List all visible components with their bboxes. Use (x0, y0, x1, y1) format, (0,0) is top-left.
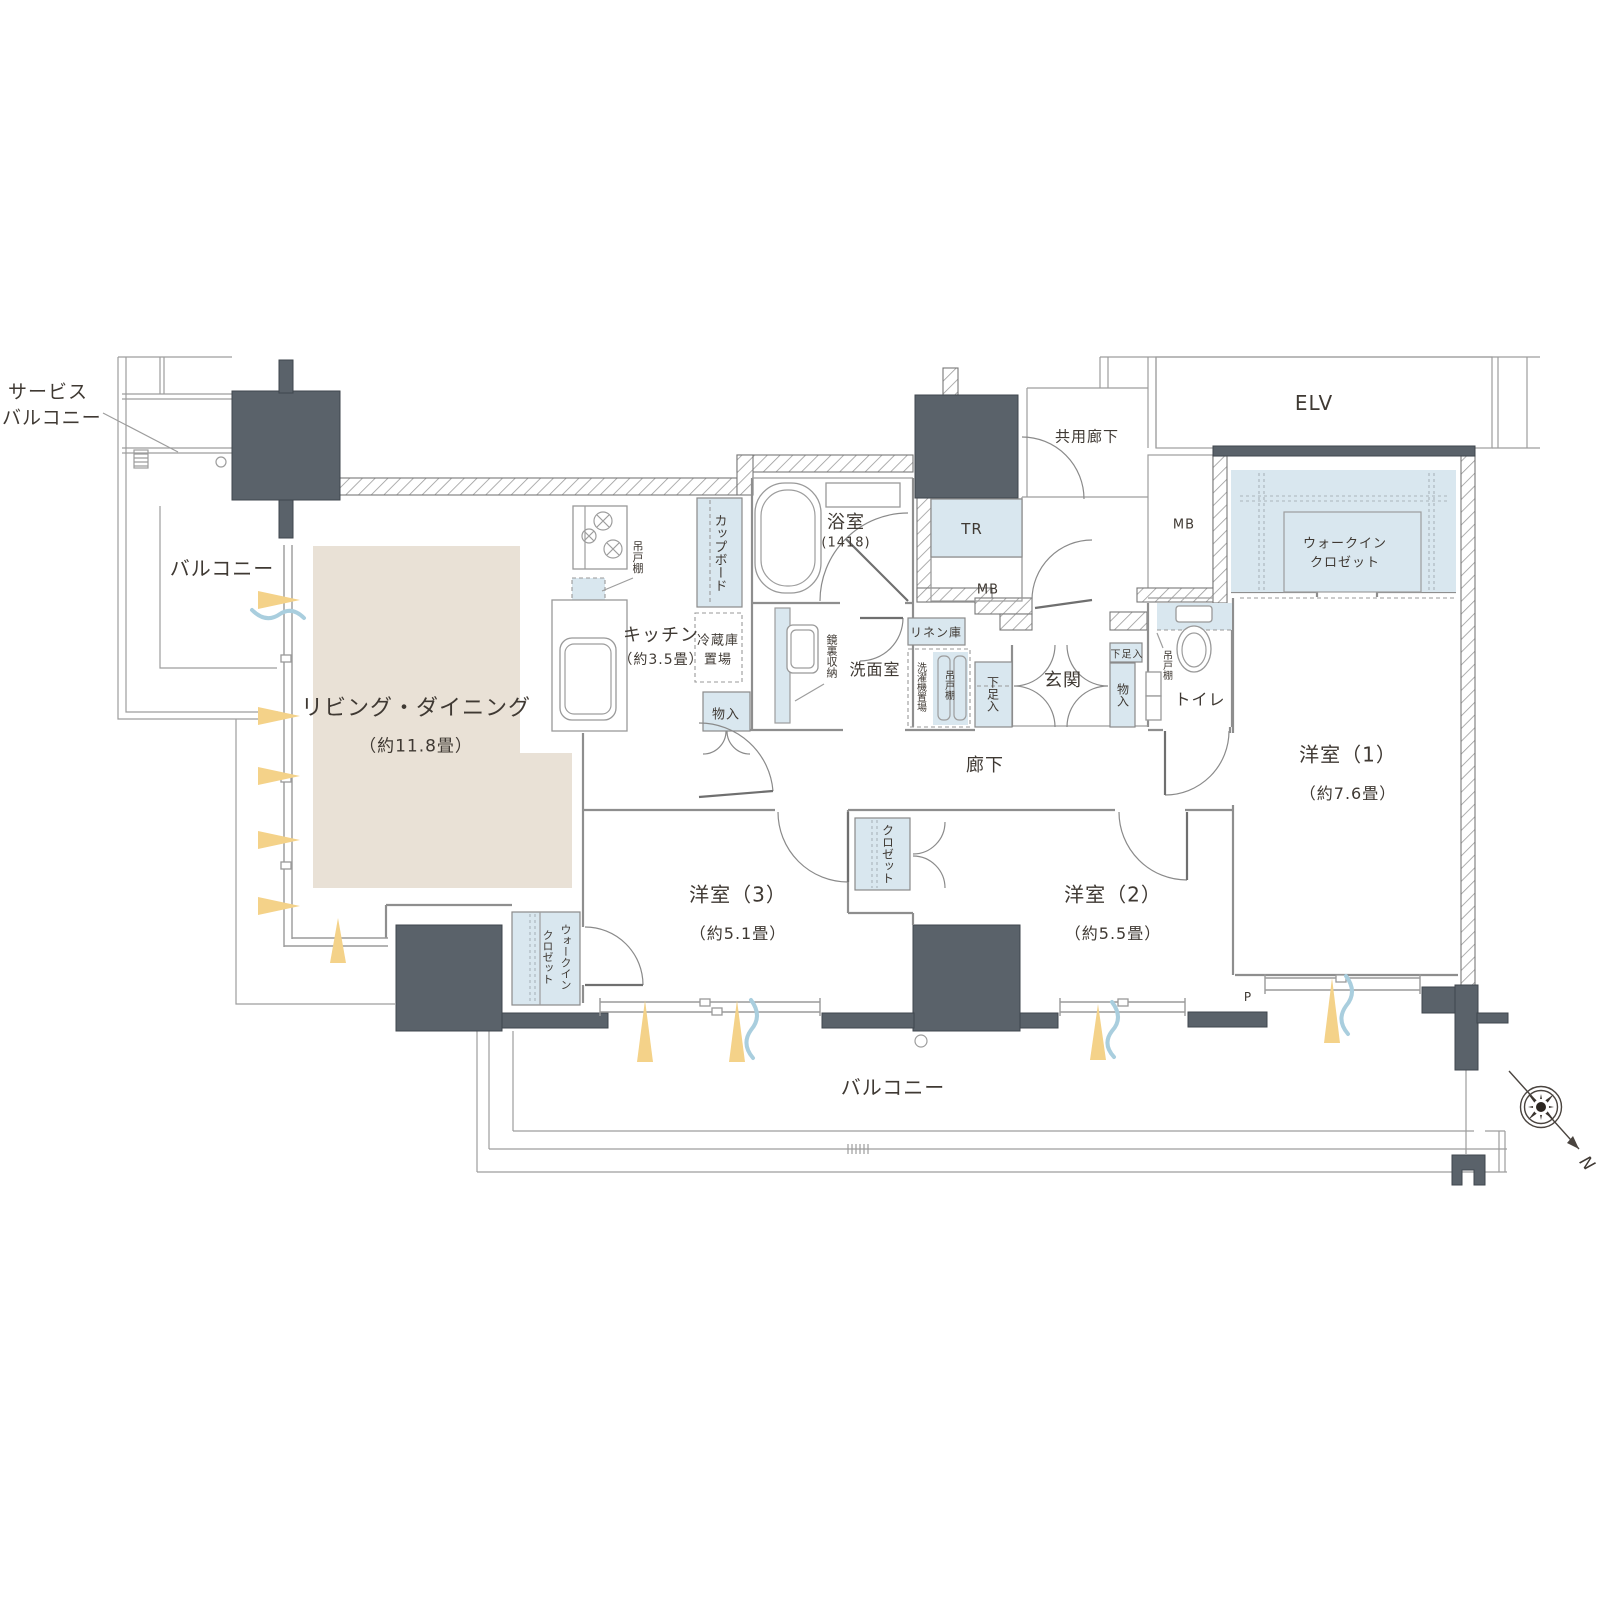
fridge-space-label-line1: 冷蔵庫 (697, 630, 739, 649)
closet-label: クロゼット (880, 824, 897, 884)
living-dining-size: （約11.8畳） (359, 732, 473, 757)
washroom-label: 洗面室 (849, 656, 900, 680)
floor-plan: サービス バルコニー バルコニー リビング・ダイニング （約11.8畳） キッチ… (0, 0, 1600, 1600)
bedroom1-label: 洋室（1） (1299, 739, 1397, 768)
compass (1509, 1071, 1579, 1149)
elevator-label: ELV (1295, 391, 1333, 415)
wic-bedroom3-label-line2: クロゼット (539, 930, 555, 985)
trunk-room-label: TR (961, 520, 983, 538)
mirror-storage-label: 鏡裏収納 (823, 634, 839, 678)
wic-bedroom3-label-line1: ウォークイン (557, 924, 573, 990)
bedroom1-size: （約7.6畳） (1300, 780, 1396, 804)
cupboard-label: カップボード (710, 514, 729, 592)
balcony-bottom-label: バルコニー (841, 1072, 946, 1101)
wic-main-label-line2: クロゼット (1310, 552, 1380, 571)
bedroom2-size: （約5.5畳） (1065, 920, 1161, 944)
washer-space-label: 洗濯機置場 (913, 662, 928, 712)
bedroom3-size: （約5.1畳） (690, 920, 786, 944)
kitchen-label: キッチン (623, 621, 699, 647)
bedroom3-label: 洋室（3） (689, 879, 787, 908)
bath-label: 浴室 (827, 508, 865, 534)
toilet-label: トイレ (1174, 686, 1225, 710)
balcony-left-label: バルコニー (170, 553, 275, 582)
kitchen-size: （約3.5畳） (618, 649, 703, 669)
corridor-label: 廊下 (966, 751, 1004, 777)
hanging-cupboard-wash-label: 吊戸棚 (941, 670, 956, 700)
wic-main-label-line1: ウォークイン (1303, 533, 1387, 552)
bedroom2-label: 洋室（2） (1064, 879, 1162, 908)
service-balcony-label-line2: バルコニー (2, 403, 102, 430)
hanging-cupboard-toilet-label: 吊戸棚 (1159, 650, 1174, 680)
storage-entrance-label: 物入 (1115, 683, 1132, 707)
bath-size: (1418) (821, 536, 870, 551)
pipe-space-label: P (1244, 990, 1252, 1004)
shoe-entrance-label: 下足入 (1111, 646, 1144, 661)
hanging-cupboard-kitchen-label: 吊戸棚 (629, 541, 645, 574)
service-balcony-label-line1: サービス (8, 377, 88, 404)
common-corridor-label: 共用廊下 (1055, 426, 1119, 447)
living-dining-label: リビング・ダイニング (301, 690, 531, 722)
linen-label: リネン庫 (910, 624, 962, 641)
entrance-label: 玄関 (1044, 666, 1082, 692)
storage-kitchen-label: 物入 (712, 704, 740, 723)
meter-box-center-label: MB (977, 583, 999, 598)
meter-box-right-label: MB (1173, 518, 1195, 533)
fridge-space-label-line2: 置場 (704, 649, 732, 668)
shoe-hall-label: 下足入 (985, 676, 1002, 712)
